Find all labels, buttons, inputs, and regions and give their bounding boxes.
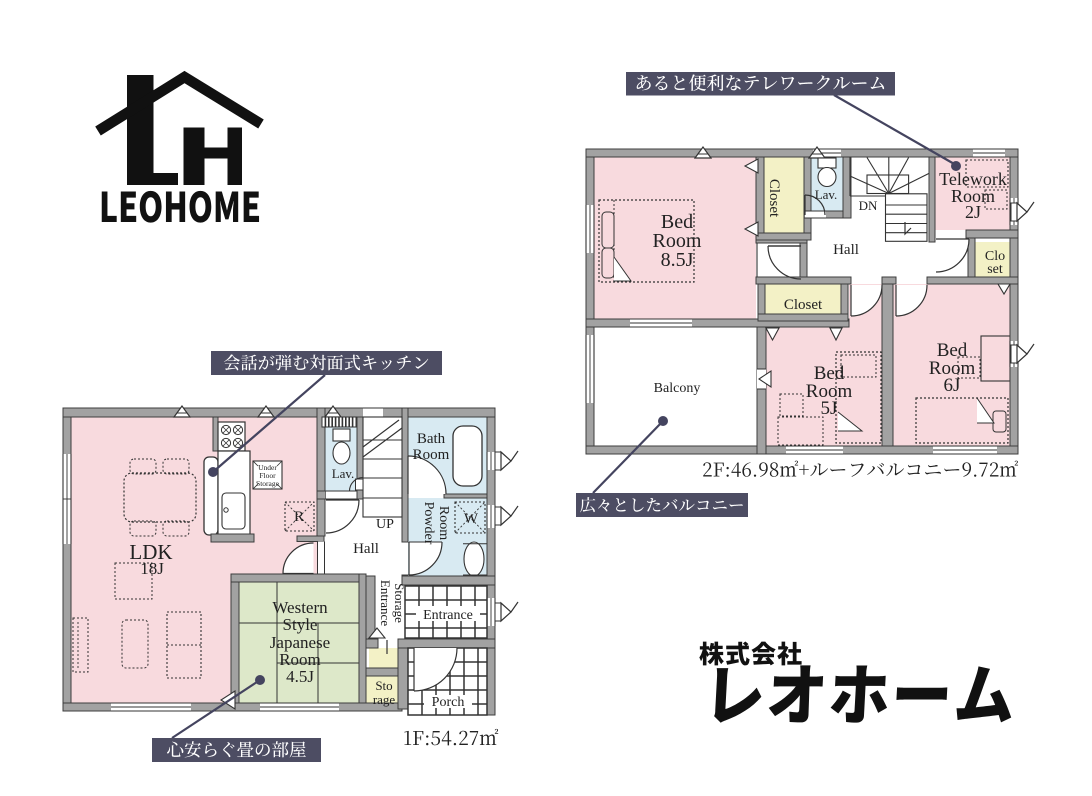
svg-text:2J: 2J <box>965 202 981 222</box>
svg-text:Hall: Hall <box>353 541 379 557</box>
svg-text:Entrance: Entrance <box>423 608 473 623</box>
svg-text:Closet: Closet <box>784 297 823 313</box>
svg-text:Bath: Bath <box>417 431 446 447</box>
svg-text:Lav.: Lav. <box>332 466 355 481</box>
svg-text:R: R <box>294 509 304 525</box>
svg-text:Storage: Storage <box>392 583 407 623</box>
svg-text:Entrance: Entrance <box>378 580 393 626</box>
svg-text:Hall: Hall <box>833 242 859 258</box>
svg-text:rage: rage <box>373 692 396 707</box>
svg-text:Balcony: Balcony <box>654 381 701 396</box>
svg-text:Style: Style <box>283 615 318 634</box>
svg-text:18J: 18J <box>140 559 164 578</box>
svg-text:set: set <box>987 262 1003 277</box>
svg-text:Sto: Sto <box>375 678 392 693</box>
svg-text:4.5J: 4.5J <box>286 667 314 686</box>
svg-text:6J: 6J <box>944 375 961 396</box>
svg-text:UP: UP <box>376 517 394 532</box>
svg-text:5J: 5J <box>821 398 838 419</box>
svg-text:W: W <box>464 511 479 527</box>
svg-text:Storage: Storage <box>256 479 280 488</box>
svg-text:Porch: Porch <box>432 695 465 710</box>
svg-text:Room: Room <box>413 447 450 463</box>
svg-text:Room: Room <box>436 506 451 540</box>
svg-text:Lav.: Lav. <box>815 187 838 202</box>
svg-text:Powder: Powder <box>421 502 436 545</box>
svg-text:8.5J: 8.5J <box>661 249 694 271</box>
svg-text:DN: DN <box>859 198 878 213</box>
svg-text:Closet: Closet <box>766 179 782 218</box>
